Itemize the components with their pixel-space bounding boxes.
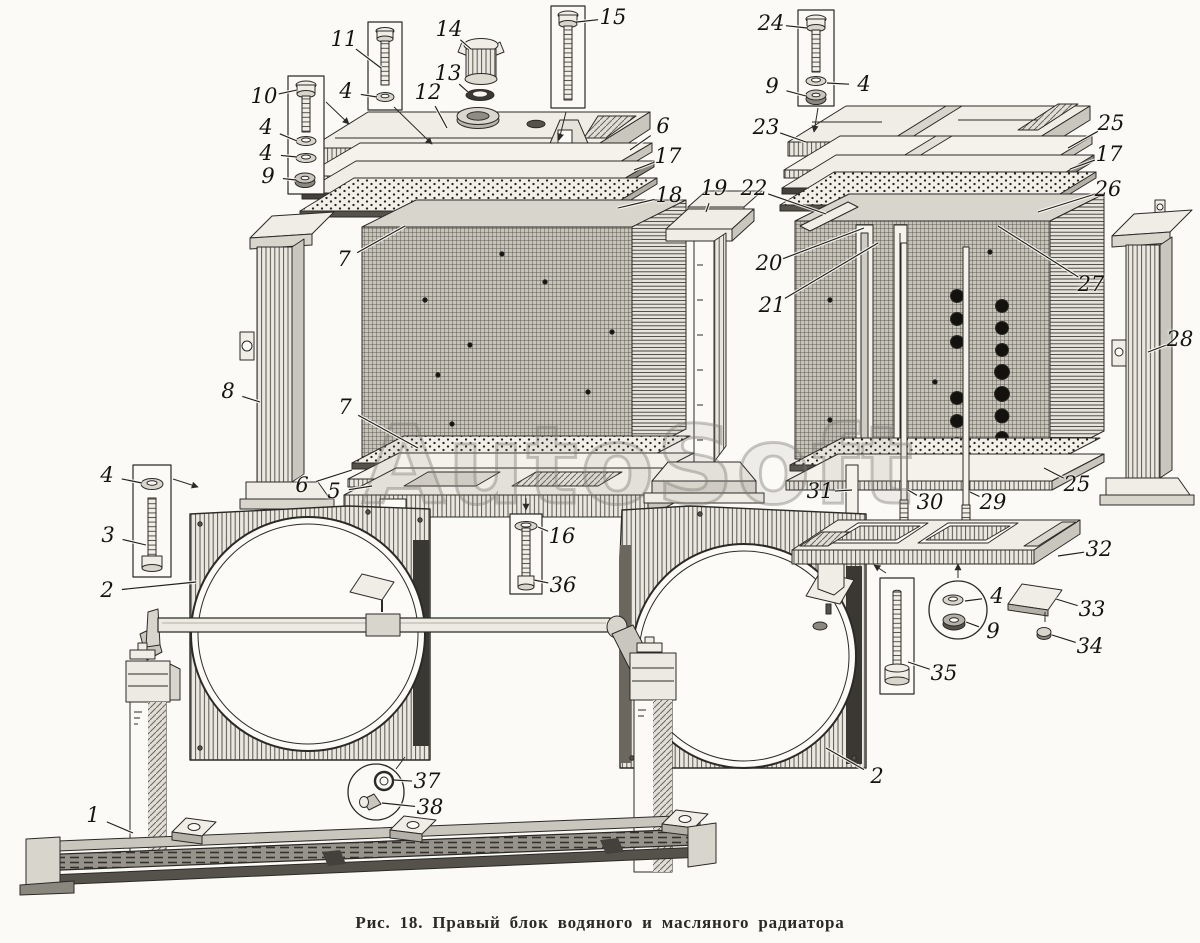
side-bracket-right — [1100, 200, 1194, 505]
bracket-33 — [1008, 584, 1062, 622]
filler-neck — [458, 39, 504, 85]
tie-rod-30 — [900, 243, 908, 529]
figure-caption: Рис. 18. Правый блок водяного и масляног… — [0, 913, 1200, 933]
side-bracket-left — [240, 212, 334, 509]
support-post-left — [126, 643, 180, 860]
bottom-mount-plate — [792, 520, 1080, 595]
tie-rod-29 — [962, 247, 970, 560]
callout-circle-washer-pin — [348, 757, 405, 820]
nut-34 — [1037, 628, 1051, 640]
callout-box-bolt-35 — [874, 565, 914, 694]
diagram-illustration — [0, 0, 1200, 943]
lower-frame-oil — [786, 454, 1104, 490]
callout-box-bolt-24 — [798, 10, 834, 132]
figure-page: AutoSoft 1141044914131512617187876519222… — [0, 0, 1200, 943]
radiator-core-water — [362, 200, 686, 457]
base-frame — [20, 810, 716, 895]
radiator-core-oil — [795, 194, 1104, 460]
callout-box-bolt-3 — [133, 465, 198, 577]
filler-gasket — [466, 90, 494, 101]
callout-circle-washer-nut — [929, 564, 987, 639]
